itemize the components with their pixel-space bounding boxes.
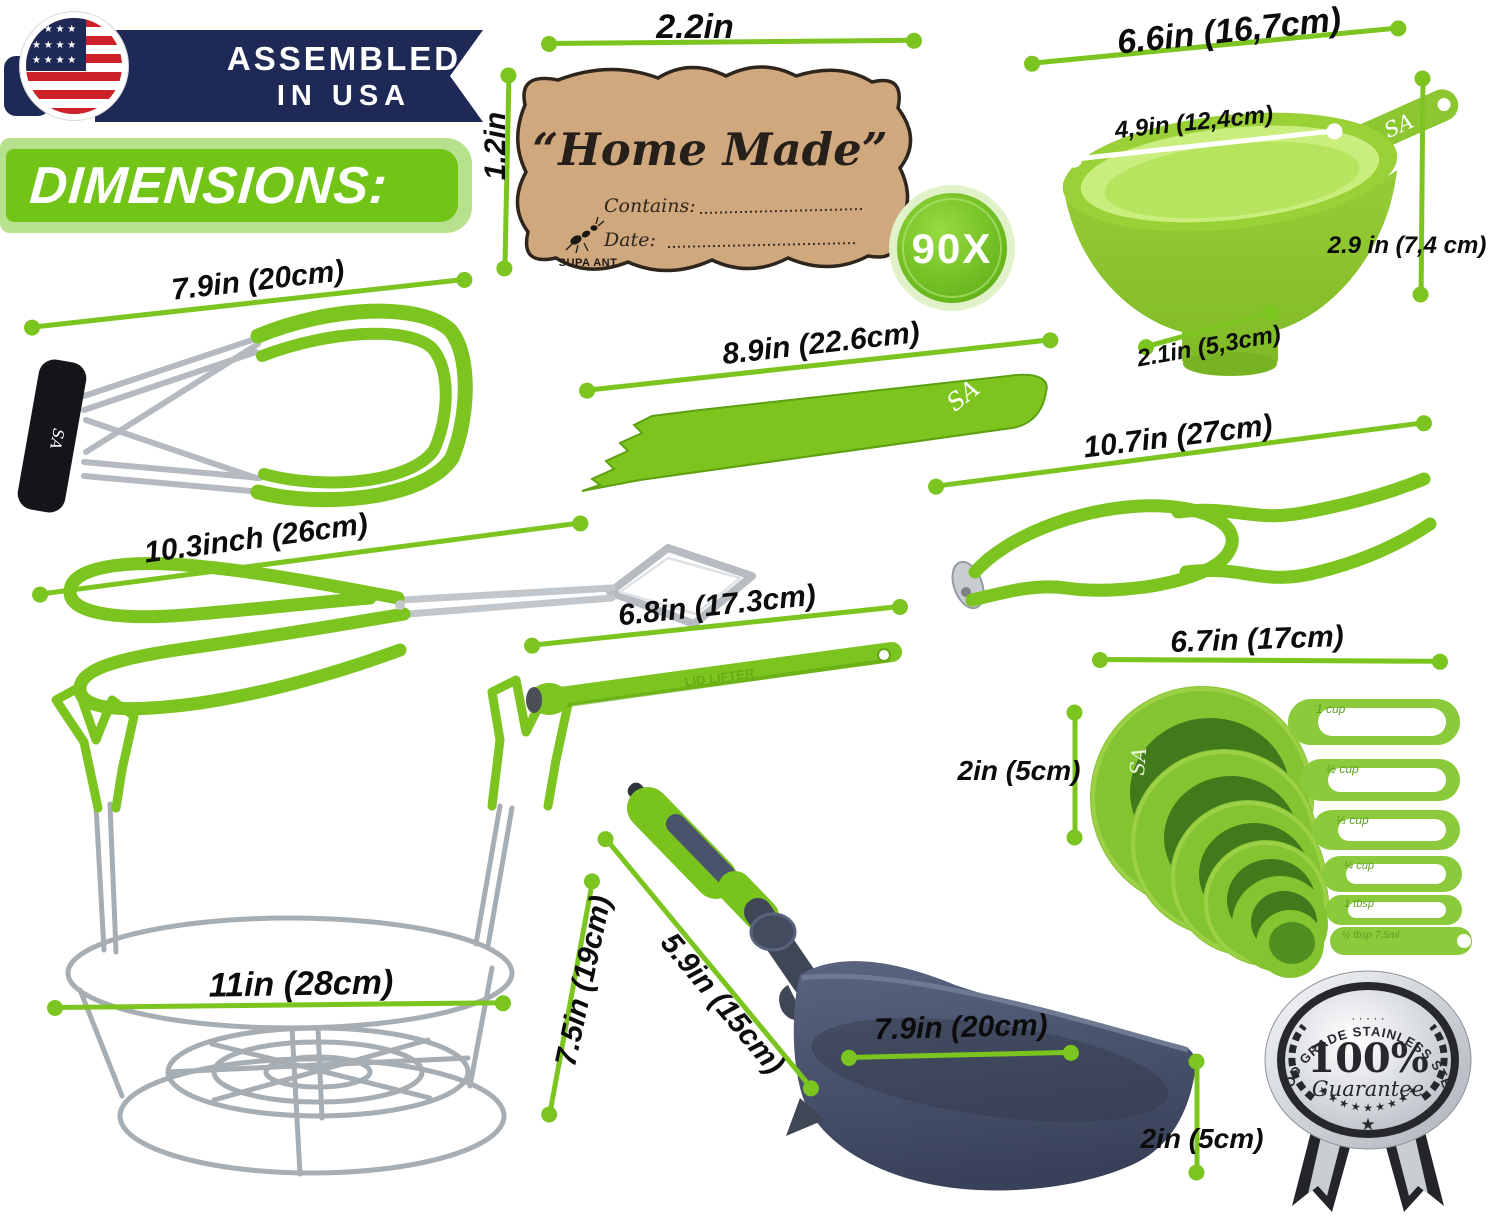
measure-label-cups-width: 6.7in (17cm): [1170, 622, 1344, 658]
measure-label-ladle-depth: 2in (5cm): [1141, 1125, 1264, 1153]
label-title: “Home Made”: [532, 123, 887, 176]
measure-label-label-width: 2.2in: [656, 10, 733, 44]
guarantee-bottom-star: ★: [1360, 1115, 1375, 1134]
measure-label-rack-diameter: 11in (28cm): [208, 965, 393, 1002]
assembled-line1: ASSEMBLED: [227, 40, 461, 78]
flag-canton: ★ ★ ★ ★ ★ ★ ★ ★ ★ ★ ★ ★: [26, 18, 86, 71]
measure-label-label-height: 1.2in: [481, 112, 511, 180]
measure-label-funnel-height: 2.9 in (7,4 cm): [1328, 234, 1487, 258]
jar-wrench: [947, 479, 1430, 612]
contains-label: Contains:: [604, 195, 696, 217]
date-label: Date:: [603, 229, 656, 251]
measure-label-cups-height: 2in (5cm): [958, 757, 1081, 785]
product-dimensions-infographic: SA SA LID LIFTER: [0, 0, 1500, 1226]
assembled-badge: ASSEMBLED IN USA: [95, 30, 483, 122]
measuring-cups: 1 cup ½ cup ⅓ cup ¼ cup: [1090, 686, 1472, 978]
dimensions-banner: DIMENSIONS:: [0, 138, 472, 233]
rack-green-handle-tips: [56, 680, 568, 808]
sa-logo: SA: [1125, 746, 1151, 776]
guarantee-dots: · · · · ·: [1351, 1011, 1384, 1025]
cup-size-label: ¼ cup: [1344, 860, 1374, 872]
cup-size-label: 1 tbsp: [1344, 898, 1374, 910]
guarantee-percent: 100%: [1307, 1035, 1429, 1082]
magnet-tip: [526, 687, 542, 713]
magnetic-lid-lifter: LID LIFTER: [526, 649, 892, 715]
sa-logo: SA: [46, 427, 67, 451]
jar-lifter: SA: [15, 311, 465, 515]
cup-size-label: 1 cup: [1316, 702, 1346, 716]
bubble-remover-knife: SA: [582, 374, 1047, 491]
cup-size-label: ½ cup: [1326, 762, 1359, 776]
measure-label-ladle-width: 7.9in (20cm): [874, 1011, 1048, 1046]
homemade-label-card: “Home Made” Contains: Date: SUPA ANT: [517, 67, 910, 271]
brand-text: SUPA ANT: [559, 257, 618, 269]
assembled-line2: IN USA: [277, 80, 411, 113]
us-flag-icon: ★ ★ ★ ★ ★ ★ ★ ★ ★ ★ ★ ★: [19, 11, 129, 121]
measure-line-ladle-depth: [1195, 1059, 1200, 1176]
dimensions-title: DIMENSIONS:: [28, 156, 390, 216]
canning-rack: [56, 680, 568, 1174]
cup-size-label: ⅓ cup: [1336, 813, 1369, 827]
count-badge: 90X: [889, 185, 1015, 311]
cup-size-label: ½ tbsp 7.5ml: [1342, 930, 1400, 941]
count-badge-text: 90X: [912, 225, 993, 272]
